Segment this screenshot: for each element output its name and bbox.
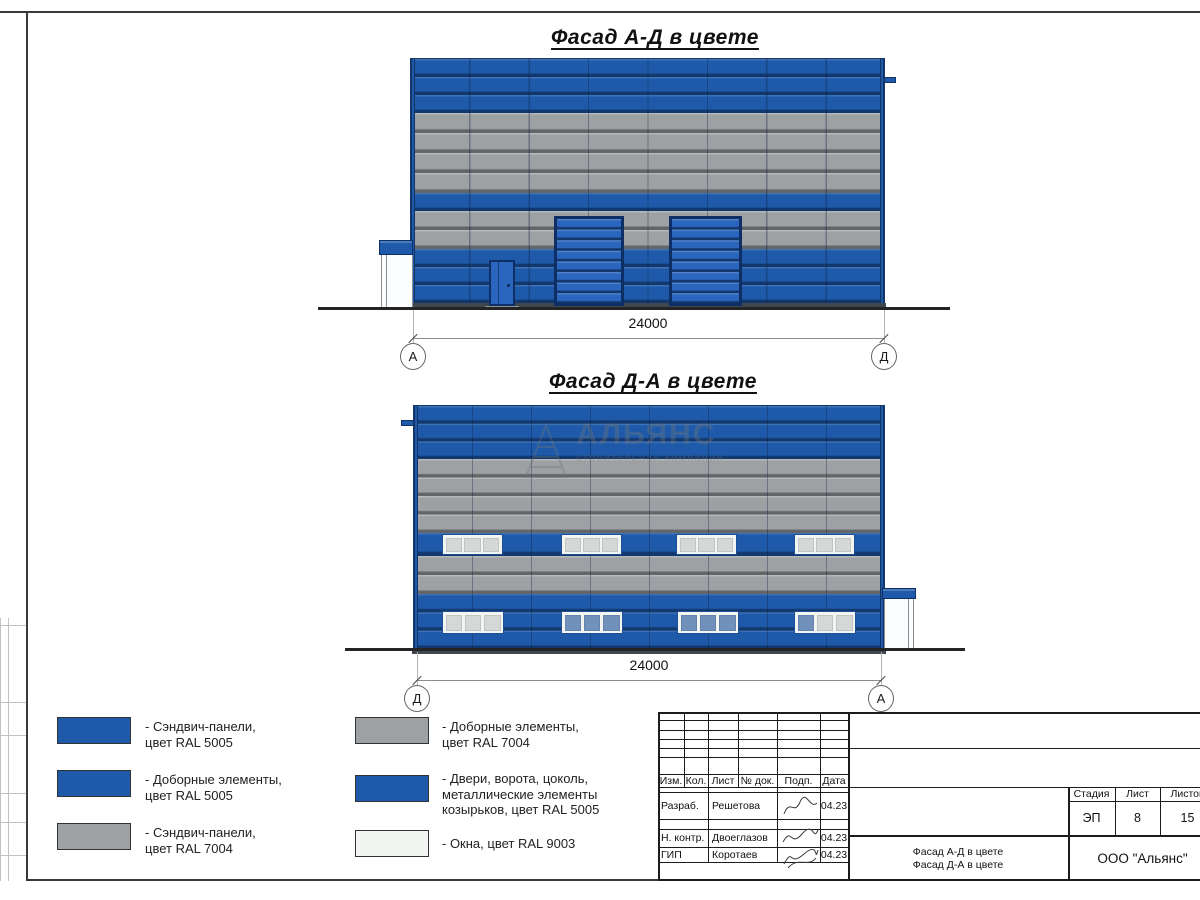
tb-sheets-value: 15: [1160, 801, 1200, 835]
corner-trim-left: [414, 406, 418, 649]
window: [676, 534, 737, 555]
legend-label: - Доборные элементы, цвет RAL 7004: [442, 719, 579, 750]
panel-seams: [411, 59, 884, 303]
tb-col-doc: № док.: [738, 774, 777, 787]
gutter-outlet: [401, 420, 414, 426]
window: [442, 534, 503, 555]
gate-left: [554, 216, 624, 306]
tb-date: 04.23: [820, 829, 848, 847]
legend-swatch: [57, 823, 131, 850]
axis-marker-a: А: [868, 685, 894, 712]
legend-swatch: [57, 717, 131, 744]
corner-trim-right: [880, 59, 884, 303]
tb-company: ООО "Альянс": [1070, 837, 1200, 879]
title-block: Изм. Кол. Лист № док. Подп. Дата Разраб.…: [658, 712, 1200, 881]
dimension-line: [417, 680, 881, 681]
window: [561, 611, 623, 634]
drawing-sheet: { "facade_top": { "title": "Фасад А-Д в …: [0, 0, 1200, 900]
entrance-door: [489, 260, 515, 306]
tb-col-podp: Подп.: [777, 774, 820, 787]
ground-line: [345, 648, 965, 651]
legend-label: - Окна, цвет RAL 9003: [442, 836, 575, 852]
facade-d-a-title: Фасад Д-А в цвете: [418, 370, 888, 394]
tb-sheet-label: Лист: [1115, 787, 1160, 801]
tb-name: Коротаев: [712, 847, 777, 862]
dimension-text: 24000: [588, 315, 708, 331]
window: [442, 611, 504, 634]
tb-col-izm: Изм.: [658, 774, 684, 787]
door-handle: [507, 284, 510, 287]
tb-role: ГИП: [661, 847, 708, 862]
tb-date: 04.23: [820, 792, 848, 819]
tb-name: Двоеглазов: [712, 829, 777, 847]
frame-top: [0, 11, 1200, 13]
tb-stage-label: Стадия: [1068, 787, 1115, 801]
tb-role: Н. контр.: [661, 829, 708, 847]
frame-left: [26, 11, 28, 881]
window: [794, 534, 855, 555]
legend-swatch: [355, 830, 429, 857]
legend-label: - Сэндвич-панели, цвет RAL 7004: [145, 825, 256, 856]
tb-doc-title: Фасад А-Д в цвете Фасад Д-А в цвете: [848, 837, 1068, 879]
tb-col-kol: Кол.: [684, 774, 708, 787]
tb-stage-value: ЭП: [1068, 801, 1115, 835]
legend-label: - Двери, ворота, цоколь, металлические э…: [442, 771, 599, 818]
legend-label: - Доборные элементы, цвет RAL 5005: [145, 772, 282, 803]
axis-marker-d: Д: [404, 685, 430, 712]
legend-swatch: [355, 775, 429, 802]
tb-name: Решетова: [712, 792, 777, 819]
axis-marker-d: Д: [871, 343, 897, 370]
gutter-outlet: [884, 77, 896, 83]
tb-col-list: Лист: [708, 774, 738, 787]
tb-role: Разраб.: [661, 792, 708, 819]
facade-a-d-drawing: [410, 58, 885, 308]
tb-date: 04.23: [820, 847, 848, 862]
dimension-line: [413, 338, 884, 339]
facade-d-a-drawing: [413, 405, 885, 653]
door-leaf-line: [498, 262, 499, 304]
tb-col-data: Дата: [820, 774, 848, 787]
legend-swatch: [355, 717, 429, 744]
tb-sheets-label: Листов: [1160, 787, 1200, 801]
facade-a-d-title: Фасад А-Д в цвете: [420, 26, 890, 50]
gate-right: [669, 216, 742, 306]
tb-sheet-value: 8: [1115, 801, 1160, 835]
axis-marker-a: А: [400, 343, 426, 370]
window: [677, 611, 739, 634]
dimension-text: 24000: [589, 657, 709, 673]
legend-label: - Сэндвич-панели, цвет RAL 5005: [145, 719, 256, 750]
window: [794, 611, 856, 634]
legend-swatch: [57, 770, 131, 797]
window: [561, 534, 622, 555]
